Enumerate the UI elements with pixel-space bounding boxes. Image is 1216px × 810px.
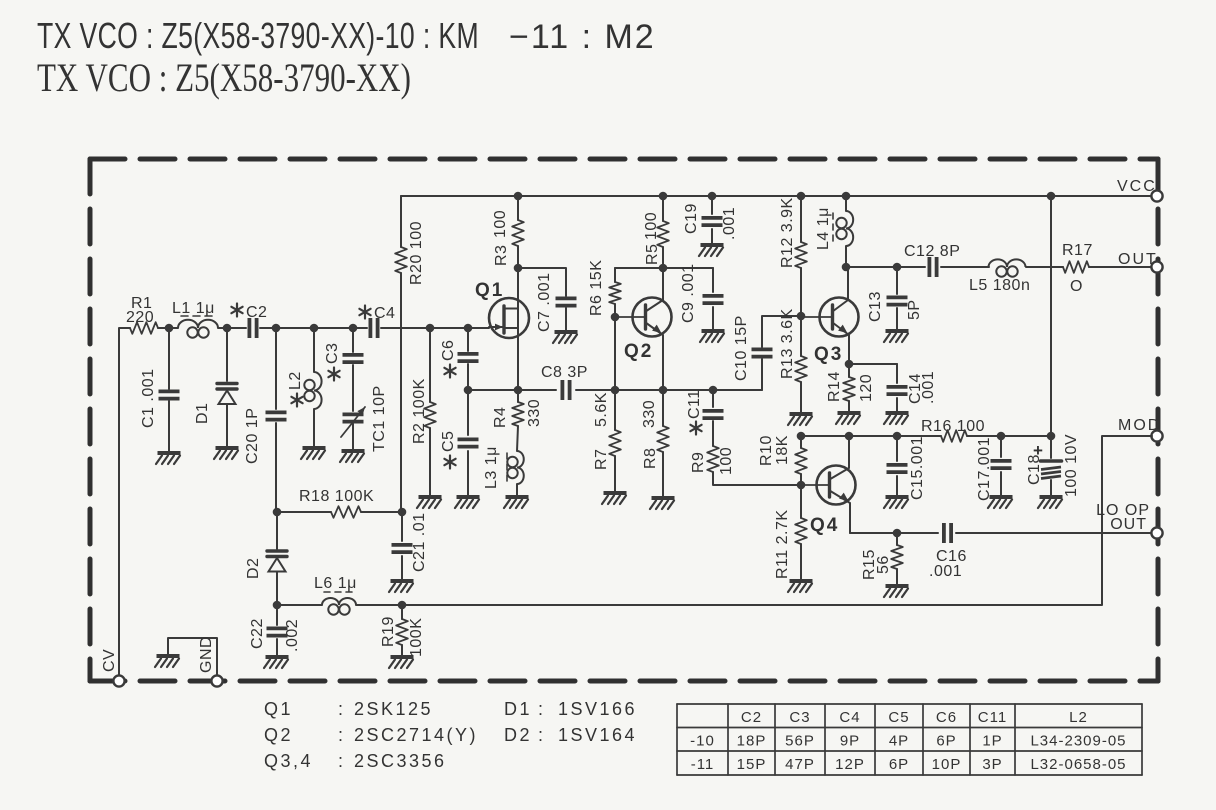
svg-text:1SV166: 1SV166 [558,699,637,719]
svg-text:R7: R7 [593,449,610,470]
svg-text:C3: C3 [789,709,810,726]
svg-text:C18: C18 [1026,454,1043,485]
svg-text:56P: 56P [785,733,815,750]
svg-text:O: O [1070,278,1083,295]
svg-text:220: 220 [126,309,154,326]
svg-text:R17: R17 [1062,242,1093,259]
svg-text:C21 .01: C21 .01 [411,512,428,572]
svg-text:4P: 4P [889,733,909,750]
svg-text:100K: 100K [408,618,425,657]
svg-text:56: 56 [875,555,892,574]
svg-text:R8: R8 [642,448,659,469]
svg-text:Q1: Q1 [475,280,504,301]
svg-text:.001: .001 [721,207,738,240]
svg-text:-10: -10 [690,733,715,750]
svg-text:330: 330 [526,399,543,427]
svg-text:C11: C11 [686,389,703,419]
svg-text:C7 .001: C7 .001 [536,272,553,332]
svg-text:R18 100K: R18 100K [299,488,374,505]
svg-text:R4: R4 [492,407,509,428]
svg-text:120: 120 [858,374,875,402]
svg-text:Q4: Q4 [810,515,839,536]
svg-text:Q3,4: Q3,4 [264,751,313,771]
svg-text:C11: C11 [978,709,1007,726]
svg-text:L1 1μ: L1 1μ [172,300,215,317]
svg-text:.001: .001 [929,563,962,580]
svg-text:D2: D2 [504,725,532,745]
svg-text:R6 15K: R6 15K [588,260,605,316]
svg-text:47P: 47P [785,756,815,773]
svg-text:3P: 3P [982,756,1002,773]
svg-text::: : [338,725,344,745]
svg-text:OUT: OUT [1118,251,1158,268]
svg-text:L6 1μ: L6 1μ [314,575,357,592]
svg-text:R14: R14 [826,371,843,402]
svg-text:R3: R3 [493,245,510,266]
svg-text:TX VCO : Z5(X58-3790-XX): TX VCO : Z5(X58-3790-XX) [37,55,411,100]
svg-text:MOD: MOD [1118,417,1161,434]
svg-text:Q2: Q2 [624,341,653,362]
svg-text:C13: C13 [867,291,884,322]
svg-text:R11 2.7K: R11 2.7K [774,509,791,579]
svg-text::: : [338,699,344,719]
svg-text::: : [338,751,344,771]
svg-text:15P: 15P [737,756,767,773]
svg-text:-11: -11 [691,756,715,773]
svg-text:TX VCO : Z5(X58-3790-XX)-10 :: TX VCO : Z5(X58-3790-XX)-10 : KM [37,15,479,56]
svg-text:100: 100 [643,212,660,240]
svg-text:C4: C4 [374,305,395,322]
svg-text:R20 100: R20 100 [408,221,425,285]
svg-text:L3 1μ: L3 1μ [483,446,500,489]
svg-text:D1: D1 [504,699,532,719]
svg-text:VCC: VCC [1117,178,1157,195]
svg-text:L4 1μ: L4 1μ [815,207,832,250]
svg-text:C2: C2 [246,304,267,321]
svg-text:L2: L2 [1069,709,1088,726]
svg-text:6P: 6P [936,733,956,750]
svg-text:R2 100K: R2 100K [411,378,428,444]
svg-text:C12 8P: C12 8P [904,243,960,260]
svg-text:OUT: OUT [1110,516,1147,533]
svg-text:R13 3.6K: R13 3.6K [779,308,796,379]
svg-text:1SV164: 1SV164 [558,725,637,745]
svg-text:2SK125: 2SK125 [354,699,433,719]
svg-text:5P: 5P [906,299,923,320]
svg-text:C4: C4 [839,709,860,726]
svg-text:C6: C6 [936,709,957,726]
svg-text:330: 330 [641,400,658,428]
svg-text:R19: R19 [380,616,397,647]
svg-text:2SC3356: 2SC3356 [354,751,447,771]
svg-text:R16 100: R16 100 [921,418,985,435]
svg-text:1P: 1P [982,733,1002,750]
svg-text:C10 15P: C10 15P [733,315,750,381]
svg-text::: : [538,699,544,719]
svg-text::: : [538,725,544,745]
svg-text:2SC2714(Y): 2SC2714(Y) [354,725,478,745]
svg-text:−11 : M2: −11 : M2 [509,18,656,56]
svg-text:C19: C19 [683,203,700,234]
svg-text:6P: 6P [889,756,909,773]
svg-text:L34-2309-05: L34-2309-05 [1030,733,1126,750]
svg-text:9P: 9P [840,733,860,750]
svg-text:10P: 10P [932,756,962,773]
svg-text:D2: D2 [245,558,262,579]
svg-text:C5: C5 [440,431,457,452]
svg-text:TC1 10P: TC1 10P [371,385,388,452]
svg-text:L32-0658-05: L32-0658-05 [1030,756,1126,773]
svg-text:GND: GND [198,636,215,673]
svg-text:Q2: Q2 [264,725,293,745]
svg-text:C6: C6 [440,340,457,361]
svg-text:Q3: Q3 [814,344,843,365]
svg-text:L2: L2 [287,371,304,390]
svg-text:CV: CV [101,649,118,672]
svg-text:18P: 18P [737,733,767,750]
svg-text:C17.001: C17.001 [976,437,993,501]
svg-text:R10: R10 [758,435,775,466]
svg-text:C8 3P: C8 3P [541,364,588,381]
svg-text:100 10V: 100 10V [1063,434,1080,497]
svg-text:C5: C5 [888,709,909,726]
svg-text:C1 .001: C1 .001 [140,368,157,428]
svg-text:C20 1P: C20 1P [244,408,261,464]
svg-text:L5 180n: L5 180n [969,277,1030,294]
svg-text:Q1: Q1 [264,699,293,719]
svg-text:D1: D1 [194,403,211,424]
svg-text:.001: .001 [920,371,937,404]
svg-text:C9 .001: C9 .001 [680,263,697,323]
svg-text:5.6K: 5.6K [593,392,610,427]
svg-text:C22: C22 [249,618,266,649]
svg-text:C15.001: C15.001 [909,436,926,500]
svg-text:.002: .002 [284,619,301,652]
svg-text:C3: C3 [324,343,341,364]
svg-text:R9: R9 [690,452,707,473]
svg-text:12P: 12P [835,756,865,773]
svg-text:100: 100 [718,447,735,475]
svg-text:18K: 18K [774,435,791,465]
svg-text:C2: C2 [741,709,762,726]
svg-text:R5: R5 [644,244,661,265]
svg-text:100: 100 [492,210,509,238]
svg-text:R12 3.9K: R12 3.9K [779,197,796,268]
